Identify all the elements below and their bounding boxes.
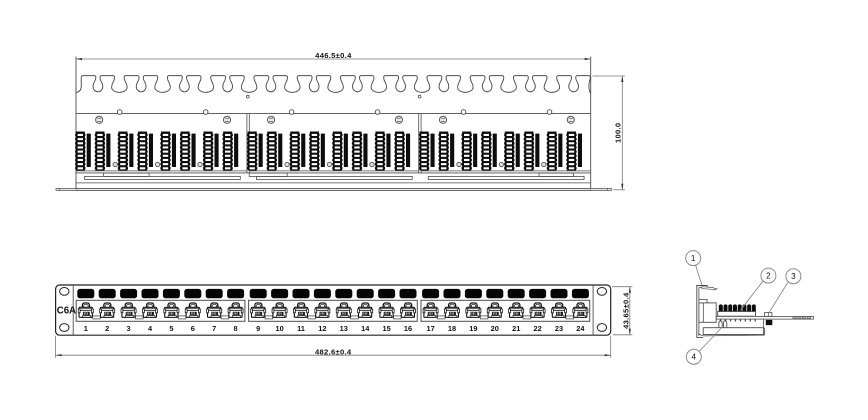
svg-text:7: 7 [212,324,216,333]
svg-text:16: 16 [404,324,412,333]
svg-text:23: 23 [555,324,563,333]
svg-text:3: 3 [791,272,796,281]
svg-text:446.5±0.4: 446.5±0.4 [315,51,352,60]
svg-text:6: 6 [191,324,195,333]
svg-text:1: 1 [84,324,88,333]
svg-text:22: 22 [533,324,541,333]
svg-text:20: 20 [491,324,499,333]
svg-text:100.0: 100.0 [614,123,623,144]
svg-text:3: 3 [127,324,131,333]
svg-text:15: 15 [382,324,390,333]
svg-text:C6A: C6A [57,305,76,316]
svg-text:1: 1 [691,254,696,263]
svg-text:21: 21 [512,324,520,333]
svg-text:2: 2 [105,324,109,333]
svg-text:24: 24 [576,324,585,333]
svg-text:10: 10 [275,324,283,333]
svg-text:43.65±0.4: 43.65±0.4 [621,292,630,329]
svg-text:482.6±0.4: 482.6±0.4 [315,347,352,356]
svg-text:17: 17 [426,324,434,333]
svg-text:18: 18 [448,324,456,333]
svg-text:5: 5 [169,324,173,333]
svg-text:12: 12 [318,324,326,333]
svg-text:4: 4 [692,353,697,362]
svg-text:14: 14 [361,324,370,333]
svg-text:13: 13 [340,324,348,333]
svg-text:2: 2 [766,272,771,281]
svg-text:19: 19 [469,324,477,333]
svg-text:8: 8 [234,324,238,333]
svg-text:9: 9 [256,324,260,333]
svg-text:11: 11 [297,324,305,333]
